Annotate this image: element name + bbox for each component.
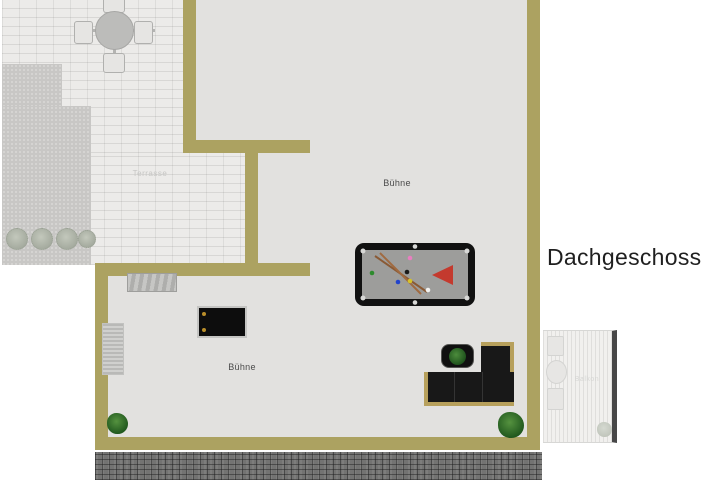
coffee-table [441,344,474,368]
shrub-icon [78,230,96,248]
roof-tile-band [95,452,542,480]
wall-segment [95,437,540,450]
sofa-horizontal-section [424,372,514,406]
stair-mat [102,323,124,375]
shrub-icon [31,228,53,250]
table-knob-icon [202,328,206,332]
table-plant-icon [449,348,466,365]
balcony-plant-icon [597,422,612,437]
shrub-icon [6,228,28,250]
chair-icon [103,53,125,73]
shrub-icon [56,228,78,250]
wall-segment [183,0,196,140]
ball-icon [370,271,375,276]
ball-icon [396,280,401,285]
room-label-stage-lower: Bühne [212,362,272,372]
pocket-icon [465,249,470,254]
potted-plant-icon [107,413,128,434]
pocket-icon [413,300,418,305]
terrace-label: Terrasse [118,169,182,178]
ball-icon [405,270,410,275]
ball-icon [426,288,431,293]
balcony-seat-icon [547,336,564,356]
pocket-icon [413,244,418,249]
pocket-icon [361,249,366,254]
pool-table [355,243,475,306]
chair-icon [134,21,153,44]
wall-segment [527,0,540,450]
floorplan-canvas: Terrasse Balkon [0,0,720,480]
black-table [197,306,247,338]
pocket-icon [361,296,366,301]
wall-segment [183,140,310,153]
potted-plant-icon [498,412,524,438]
gravel-area-upper [2,64,62,106]
ball-icon [408,256,413,261]
table-knob-icon [202,312,206,316]
balcony-seat-icon [547,388,564,410]
wall-segment [245,153,258,276]
floor-upper-room [196,0,527,153]
chair-icon [74,21,93,44]
ball-icon [408,279,413,284]
balcony-label: Balkon [565,376,609,383]
round-table-icon [95,11,134,50]
room-label-stage-upper: Bühne [367,178,427,188]
sideboard [127,273,177,292]
balcony-table-icon [546,360,567,384]
floor-title: Dachgeschoss [547,244,701,271]
pool-table-graphic [355,243,475,306]
pocket-icon [465,296,470,301]
